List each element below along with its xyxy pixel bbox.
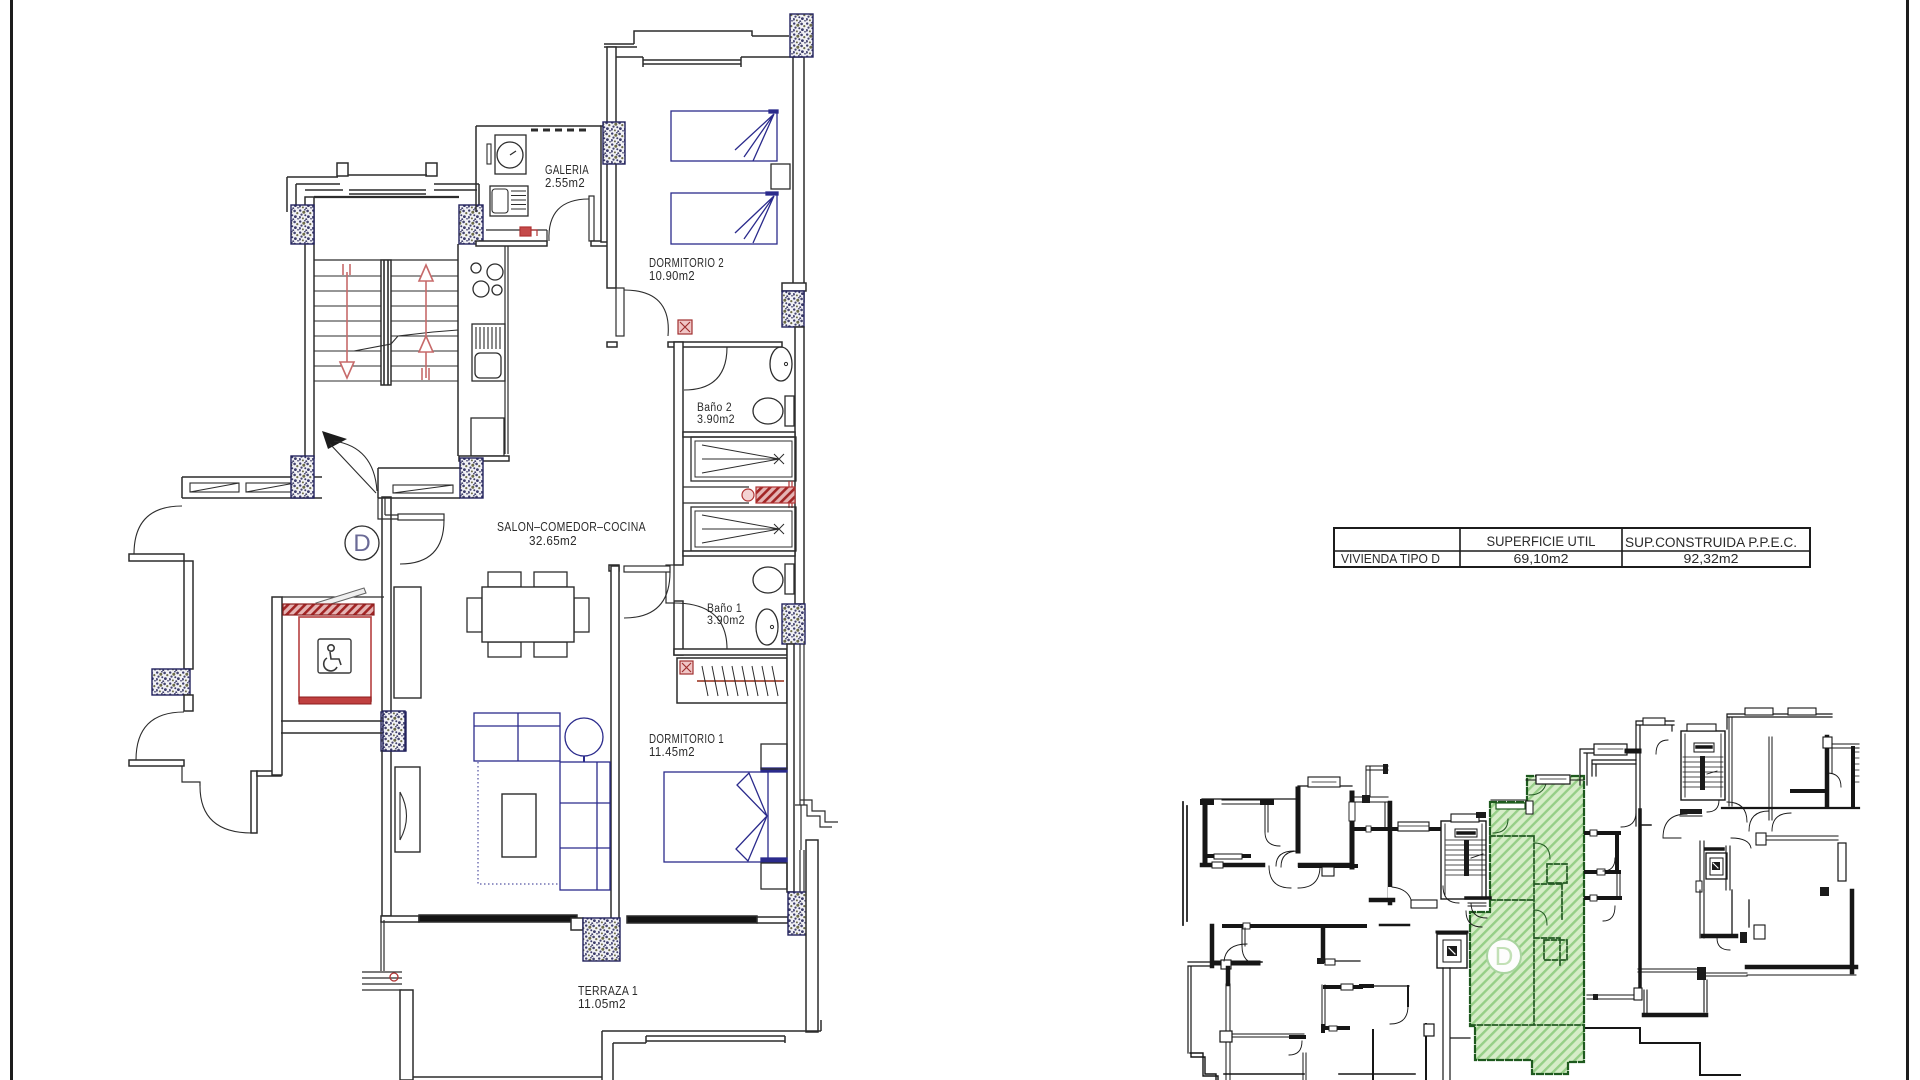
svg-text:GALERIA: GALERIA — [545, 163, 589, 177]
svg-text:DORMITORIO 1: DORMITORIO 1 — [649, 732, 724, 746]
svg-text:2.55m2: 2.55m2 — [545, 176, 585, 190]
svg-text:11.05m2: 11.05m2 — [578, 997, 626, 1011]
svg-text:SUP.CONSTRUIDA P.P.E.C.: SUP.CONSTRUIDA P.P.E.C. — [1625, 535, 1797, 550]
svg-text:SUPERFICIE UTIL: SUPERFICIE UTIL — [1487, 534, 1596, 549]
svg-text:11.45m2: 11.45m2 — [649, 745, 695, 759]
svg-text:D: D — [1495, 941, 1514, 971]
svg-text:69,10m2: 69,10m2 — [1514, 551, 1569, 566]
svg-text:92,32m2: 92,32m2 — [1684, 551, 1739, 566]
svg-text:D: D — [353, 530, 370, 557]
svg-text:VIVIENDA TIPO D: VIVIENDA TIPO D — [1341, 551, 1440, 566]
svg-text:TERRAZA 1: TERRAZA 1 — [578, 984, 638, 998]
svg-text:SALON–COMEDOR–COCINA: SALON–COMEDOR–COCINA — [497, 520, 646, 534]
svg-text:3.90m2: 3.90m2 — [697, 414, 735, 426]
svg-text:3.90m2: 3.90m2 — [707, 615, 745, 627]
svg-text:32.65m2: 32.65m2 — [529, 534, 577, 548]
svg-text:Baño 2: Baño 2 — [697, 402, 732, 414]
svg-text:10.90m2: 10.90m2 — [649, 269, 695, 283]
svg-text:DORMITORIO 2: DORMITORIO 2 — [649, 256, 724, 270]
svg-text:Baño 1: Baño 1 — [707, 603, 742, 615]
